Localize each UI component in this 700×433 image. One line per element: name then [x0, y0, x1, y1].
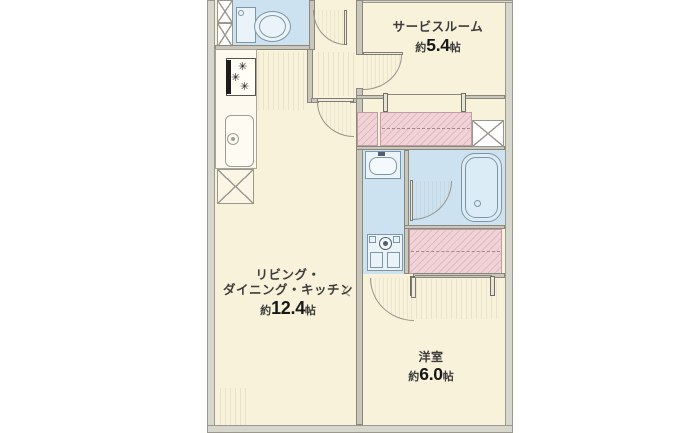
- washing-machine-detail: [370, 252, 383, 268]
- western-room-area: 約6.0帖: [362, 364, 500, 386]
- washing-machine-drum-dot: [383, 241, 388, 246]
- closet: [357, 112, 378, 146]
- wall-shading: [258, 52, 306, 110]
- sink-faucet-dot: [231, 137, 235, 141]
- service-room-south-wall: [465, 95, 505, 99]
- bathtub-drain: [474, 200, 481, 207]
- pipe-space-x-icon: [472, 120, 504, 147]
- washing-machine-detail: [369, 236, 376, 243]
- outer-wall-left: [207, 0, 215, 433]
- washbasin-bowl: [369, 157, 397, 175]
- duct-x-icon: [217, 0, 233, 23]
- wall-shading: [220, 388, 246, 425]
- outer-wall-right: [505, 0, 513, 433]
- closet-folding-door-line: [386, 94, 465, 95]
- duct-x-icon: [217, 23, 233, 47]
- hallway-left-wall: [307, 49, 313, 103]
- ldk-door-leaf: [317, 98, 354, 102]
- service-room-label: サービスルーム 約5.4帖: [368, 20, 508, 57]
- ldk-name-line1: リビング・: [215, 268, 361, 283]
- floor-plan: く ✳ ✳ ✳ サービスルーム 約5.4帖 リビング・ ダイニング・キッチン 約…: [0, 0, 700, 433]
- kitchen-x-space: [217, 169, 254, 204]
- western-room-name: 洋室: [362, 350, 500, 364]
- service-room-area: 約5.4帖: [368, 35, 508, 57]
- closet-door-pivot: [383, 93, 388, 112]
- stove-burner: ✳: [240, 82, 249, 93]
- central-wall: [356, 0, 363, 55]
- closet-folding-door-line: [415, 275, 492, 276]
- washbasin-faucet: [378, 152, 385, 156]
- service-room-south-wall: [356, 95, 386, 99]
- closet-door-pivot: [490, 276, 495, 296]
- ldk-label: リビング・ ダイニング・キッチン 約12.4帖: [215, 268, 361, 319]
- bedroom-door-leaf: [411, 277, 416, 298]
- closet-door-pivot: [461, 93, 466, 112]
- toilet-flush-knob: [238, 10, 244, 16]
- outer-wall-bottom: [207, 425, 513, 433]
- washing-machine-detail: [387, 252, 400, 268]
- western-room-label: 洋室 約6.0帖: [362, 350, 500, 386]
- toilet-door-leaf: [344, 10, 347, 45]
- ldk-name-line2: ダイニング・キッチン: [215, 283, 361, 298]
- closet-hanger-dash: [411, 251, 500, 252]
- washing-machine-detail: [393, 236, 400, 243]
- wall-shading: [416, 279, 500, 319]
- wall-shading: [318, 52, 354, 96]
- bathtub-inner: [465, 157, 498, 218]
- bathroom-door-leaf: [410, 180, 413, 221]
- outer-wall-top: [360, 0, 513, 3]
- ldk-area: 約12.4帖: [215, 298, 361, 320]
- stove-burner: ✳: [231, 73, 240, 84]
- toilet-bowl-inner: [259, 15, 286, 38]
- closet-hanger-dash: [382, 128, 470, 129]
- toilet-right-wall: [309, 0, 315, 50]
- service-room-name: サービスルーム: [368, 20, 508, 35]
- closet: [380, 112, 472, 146]
